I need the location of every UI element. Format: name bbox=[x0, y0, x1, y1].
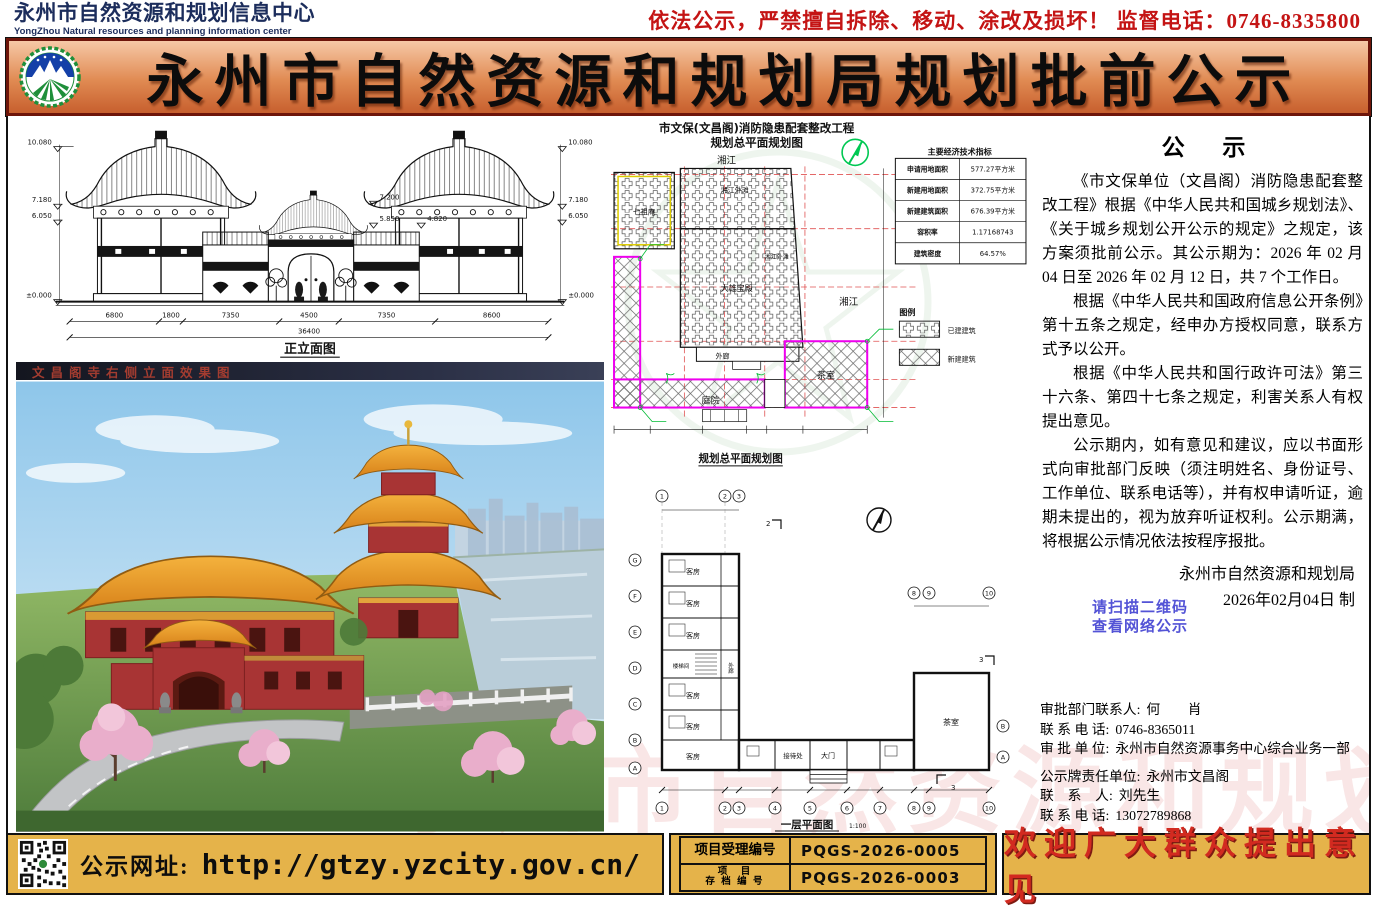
svg-text:客房: 客房 bbox=[686, 631, 700, 640]
top-bar: 永州市自然资源和规划信息中心 YongZhou Natural resource… bbox=[0, 0, 1377, 38]
svg-text:建筑密度: 建筑密度 bbox=[913, 249, 941, 258]
svg-text:±0.000: ±0.000 bbox=[568, 292, 594, 300]
center-gate bbox=[259, 191, 367, 241]
acceptance-number-label: 项目受理编号 bbox=[681, 838, 791, 863]
svg-text:6.050: 6.050 bbox=[32, 212, 52, 220]
poster-body: 永州市自然资源和规划信息中心 natural resources and pla… bbox=[6, 116, 1371, 833]
svg-text:3: 3 bbox=[951, 784, 955, 792]
acceptance-number-value: PQGS-2026-0005 bbox=[791, 838, 985, 863]
contact-info: 审批部门联系人:何 肖 联 系 电 话:0746-8365011 审 批 单 位… bbox=[1040, 700, 1350, 825]
svg-text:A: A bbox=[633, 765, 638, 773]
org-name-en: YongZhou Natural resources and planning … bbox=[14, 26, 315, 37]
notice-paragraph-3: 根据《中华人民共和国行政许可法》第三十六条、第四十七条之规定，利害关系人有权提出… bbox=[1034, 362, 1371, 434]
svg-text:4: 4 bbox=[773, 805, 777, 813]
project-number-box: 项目受理编号 PQGS-2026-0005 项 目 存 档 编 号 PQGS-2… bbox=[669, 833, 997, 895]
org-block: 永州市自然资源和规划信息中心 YongZhou Natural resource… bbox=[14, 3, 315, 36]
svg-text:申请用地面积: 申请用地面积 bbox=[907, 164, 948, 173]
svg-text:B: B bbox=[1001, 723, 1005, 731]
svg-text:64.57%: 64.57% bbox=[980, 250, 1007, 258]
contact-line: 审批部门联系人:何 肖 bbox=[1040, 700, 1350, 720]
svg-text:8: 8 bbox=[912, 590, 916, 598]
svg-text:接待处: 接待处 bbox=[783, 751, 803, 760]
title-banner: 永州市自然资源和规划局规划批前公示 bbox=[6, 38, 1371, 116]
svg-text:6800: 6800 bbox=[106, 311, 124, 319]
svg-text:±0.000: ±0.000 bbox=[26, 292, 52, 300]
svg-text:外廊: 外廊 bbox=[727, 661, 734, 675]
svg-text:10.080: 10.080 bbox=[568, 139, 592, 147]
svg-text:3: 3 bbox=[737, 493, 741, 501]
svg-text:1: 1 bbox=[660, 805, 664, 813]
floorplan-compass-icon bbox=[867, 508, 891, 532]
svg-text:9: 9 bbox=[927, 590, 931, 598]
website-box: 公示网址: http://gtzy.yzcity.gov.cn/ bbox=[6, 833, 664, 895]
svg-text:5: 5 bbox=[808, 805, 812, 813]
siteplan-caption: 规划总平面规划图 bbox=[699, 452, 783, 465]
signature-date: 2026年02月04日 制 bbox=[1034, 588, 1355, 614]
floorplan-scale: 1:100 bbox=[849, 823, 866, 830]
qr-scan-hint: 请扫描二维码 查看网络公示 bbox=[1092, 598, 1188, 636]
contact-line: 审 批 单 位:永州市自然资源事务中心综合业务一部 bbox=[1040, 739, 1350, 759]
svg-text:7350: 7350 bbox=[222, 311, 240, 319]
website-url[interactable]: http://gtzy.yzcity.gov.cn/ bbox=[202, 848, 640, 881]
svg-text:新建建筑: 新建建筑 bbox=[948, 354, 976, 363]
left-wall bbox=[203, 232, 269, 302]
svg-text:6: 6 bbox=[845, 805, 849, 813]
svg-text:7.180: 7.180 bbox=[568, 196, 588, 204]
svg-text:7.200: 7.200 bbox=[380, 193, 400, 201]
foreground-grass bbox=[16, 811, 604, 832]
bureau-logo-icon bbox=[19, 46, 81, 108]
svg-text:6.050: 6.050 bbox=[568, 212, 588, 220]
notice-signature: 永州市自然资源和规划局 2026年02月04日 制 bbox=[1034, 562, 1371, 614]
svg-text:8600: 8600 bbox=[483, 311, 501, 319]
svg-text:茶室: 茶室 bbox=[943, 717, 959, 727]
rendering-panel: 文昌阁寺右侧立面效果图 bbox=[16, 362, 604, 833]
siteplan-legend: 图例 已建建筑 新建建筑 bbox=[899, 307, 975, 365]
svg-text:湘江外滩: 湘江外滩 bbox=[721, 186, 749, 195]
welcome-box: 欢迎广大群众提出意见 bbox=[1002, 833, 1371, 895]
elevation-drawing: 10.080 7.180 6.050 ±0.000 10.080 7.180 6… bbox=[16, 120, 604, 360]
svg-text:2: 2 bbox=[766, 520, 770, 528]
siteplan-dims bbox=[614, 426, 867, 434]
table-row: 项 目 存 档 编 号 PQGS-2026-0003 bbox=[681, 865, 985, 890]
website-label: 公示网址: bbox=[80, 847, 190, 881]
contact-line: 公示牌责任单位:永州市文昌阁 bbox=[1040, 767, 1350, 787]
svg-text:主要经济技术指标: 主要经济技术指标 bbox=[928, 146, 992, 156]
table-row: 项目受理编号 PQGS-2026-0005 bbox=[681, 838, 985, 865]
svg-text:外廊: 外廊 bbox=[716, 351, 730, 360]
grid-circles-bottom: 1 2 3 4 5 6 7 8 9 10 bbox=[656, 802, 995, 814]
svg-text:1800: 1800 bbox=[162, 311, 180, 319]
notice-paragraph-1: 《市文保单位（文昌阁）消防隐患配套整改工程》根据《中华人民共和国城乡规划法》、《… bbox=[1034, 170, 1371, 290]
rendering-caption: 文昌阁寺右侧立面效果图 bbox=[16, 362, 604, 380]
elevation-caption: 正立面图 bbox=[284, 341, 336, 357]
svg-text:2: 2 bbox=[723, 805, 727, 813]
grid-circles-right: B A bbox=[997, 720, 1009, 763]
svg-text:4.820: 4.820 bbox=[427, 215, 447, 223]
svg-text:客房: 客房 bbox=[686, 567, 700, 576]
welcome-text: 欢迎广大群众提出意见 bbox=[1004, 818, 1369, 910]
svg-text:G: G bbox=[632, 557, 637, 565]
svg-text:客房: 客房 bbox=[686, 691, 700, 700]
svg-text:湘江外滩: 湘江外滩 bbox=[765, 253, 789, 261]
svg-text:F: F bbox=[633, 593, 637, 601]
rendering-image bbox=[16, 380, 604, 833]
svg-text:图例: 图例 bbox=[899, 307, 915, 317]
svg-text:容积率: 容积率 bbox=[916, 228, 938, 237]
svg-text:10: 10 bbox=[985, 805, 993, 813]
poster-main-title: 永州市自然资源和规划局规划批前公示 bbox=[81, 36, 1368, 118]
svg-text:10.080: 10.080 bbox=[27, 139, 51, 147]
qr-code bbox=[18, 839, 68, 889]
contact-line: 联 系 电 话:0746-8365011 bbox=[1040, 720, 1350, 740]
project-number-table: 项目受理编号 PQGS-2026-0005 项 目 存 档 编 号 PQGS-2… bbox=[679, 836, 987, 892]
floor-plan-drawing: 1 2 3 8 9 10 G F E D C B A bbox=[606, 468, 1032, 833]
existing-buildings: 七祖庵 湘江外滩 大雄宝殿 湘江外滩 外廊 bbox=[614, 168, 803, 369]
svg-text:楼梯间: 楼梯间 bbox=[673, 662, 690, 670]
svg-text:A: A bbox=[1001, 754, 1006, 762]
siteplan-title-1: 市文保(文昌阁)消防隐患配套整改工程 bbox=[659, 121, 855, 135]
svg-text:10: 10 bbox=[985, 590, 993, 598]
svg-text:7: 7 bbox=[878, 805, 882, 813]
river-label-top: 湘江 bbox=[717, 154, 737, 166]
notice-title: 公 示 bbox=[1034, 128, 1371, 162]
svg-text:36400: 36400 bbox=[298, 327, 320, 335]
floorplan-caption: 一层平面图 bbox=[781, 819, 834, 831]
footer-bar: 公示网址: http://gtzy.yzcity.gov.cn/ 项目受理编号 … bbox=[6, 833, 1371, 895]
public-notice-panel: 公 示 《市文保单位（文昌阁）消防隐患配套整改工程》根据《中华人民共和国城乡规划… bbox=[1034, 116, 1371, 833]
svg-text:8: 8 bbox=[912, 805, 916, 813]
river-label-right: 湘江 bbox=[839, 296, 859, 308]
svg-text:E: E bbox=[633, 629, 637, 637]
planning-notice-poster: 永州市自然资源和规划信息中心 YongZhou Natural resource… bbox=[0, 0, 1377, 900]
svg-text:5.850: 5.850 bbox=[380, 215, 400, 223]
svg-text:7350: 7350 bbox=[378, 311, 396, 319]
org-name-cn: 永州市自然资源和规划信息中心 bbox=[14, 3, 315, 25]
archive-number-value: PQGS-2026-0003 bbox=[791, 865, 985, 890]
svg-text:新建用地面积: 新建用地面积 bbox=[907, 186, 948, 195]
svg-text:客房: 客房 bbox=[686, 722, 700, 731]
svg-text:大门: 大门 bbox=[821, 751, 835, 760]
right-wall bbox=[354, 232, 420, 302]
signature-org: 永州市自然资源和规划局 bbox=[1034, 562, 1355, 588]
legal-warning-text: 依法公示，严禁擅自拆除、移动、涂改及损坏！ 监督电话：0746-8335800 bbox=[648, 5, 1361, 35]
svg-text:577.27平方米: 577.27平方米 bbox=[971, 164, 1016, 173]
svg-text:3: 3 bbox=[979, 656, 983, 664]
notice-paragraph-4: 公示期内，如有意见和建议，应以书面形式向审批部门反映（须注明姓名、身份证号、工作… bbox=[1034, 434, 1371, 554]
svg-text:2: 2 bbox=[723, 493, 727, 501]
svg-text:C: C bbox=[633, 701, 638, 709]
svg-text:客房: 客房 bbox=[686, 752, 700, 761]
site-plan-drawing: 市文保(文昌阁)消防隐患配套整改工程 规划总平面规划图 湘江 湘江 bbox=[606, 116, 1032, 468]
svg-text:1: 1 bbox=[660, 493, 664, 501]
svg-text:7.180: 7.180 bbox=[32, 196, 52, 204]
entrance-steps bbox=[810, 770, 847, 783]
archive-number-label: 项 目 存 档 编 号 bbox=[681, 865, 791, 890]
notice-paragraph-2: 根据《中华人民共和国政府信息公开条例》第十五条之规定，经申办方授权同意，联系方式… bbox=[1034, 290, 1371, 362]
svg-text:新建建筑面积: 新建建筑面积 bbox=[907, 207, 948, 216]
svg-text:客房: 客房 bbox=[686, 599, 700, 608]
siteplan-title-2: 规划总平面规划图 bbox=[711, 135, 803, 149]
svg-text:D: D bbox=[632, 665, 637, 673]
bottom-dims: 6800 1800 7350 4500 7350 8600 36400 bbox=[67, 311, 552, 340]
svg-text:3: 3 bbox=[737, 805, 741, 813]
svg-text:1.17168743: 1.17168743 bbox=[972, 229, 1013, 237]
svg-text:七祖庵: 七祖庵 bbox=[633, 207, 656, 217]
svg-text:大雄宝殿: 大雄宝殿 bbox=[721, 283, 753, 293]
svg-text:372.75平方米: 372.75平方米 bbox=[971, 186, 1016, 195]
svg-text:已建建筑: 已建建筑 bbox=[948, 326, 976, 335]
tearoom-label: 茶室 bbox=[817, 369, 835, 381]
north-compass-icon bbox=[842, 139, 868, 165]
contact-line: 联 系 人:刘先生 bbox=[1040, 786, 1350, 806]
svg-text:4500: 4500 bbox=[300, 311, 318, 319]
svg-text:9: 9 bbox=[927, 805, 931, 813]
economic-indicators-table: 主要经济技术指标 申请用地面积577.27平方米 新建用地面积372.75平方米… bbox=[895, 146, 1026, 264]
svg-text:676.39平方米: 676.39平方米 bbox=[971, 207, 1016, 216]
grid-circles-left: G F E D C B A bbox=[629, 554, 641, 774]
svg-text:B: B bbox=[633, 737, 637, 745]
